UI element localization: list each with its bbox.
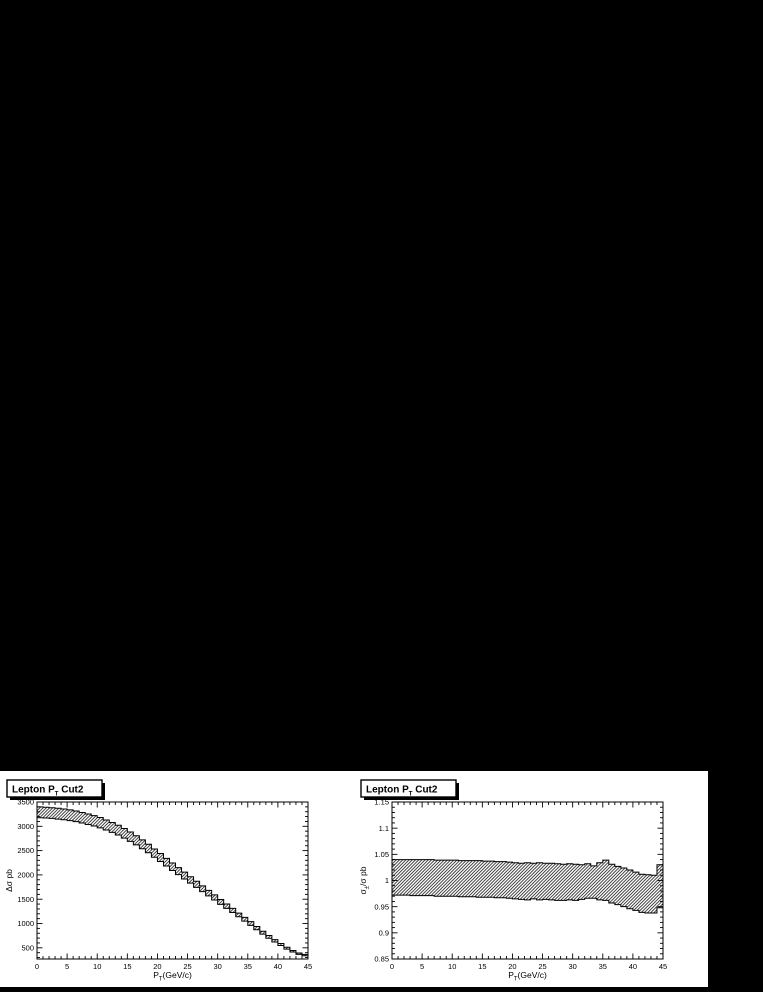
y-axis-title: Δσ pb — [4, 869, 14, 892]
y-tick-label: 0.95 — [374, 902, 389, 911]
y-tick-label: 1.05 — [374, 850, 389, 859]
y-tick-label: 2000 — [17, 871, 34, 880]
y-tick-label: 1500 — [17, 895, 34, 904]
chart-svg: 0510152025303540455001000150020002500300… — [0, 771, 354, 987]
x-tick-label: 30 — [213, 962, 221, 971]
x-axis-title: PT(GeV/c) — [153, 970, 192, 983]
y-tick-label: 0.85 — [374, 955, 389, 964]
y-tick-label: 1000 — [17, 919, 34, 928]
x-tick-label: 40 — [629, 962, 637, 971]
pad-sigma-ratio-vs-pt: 0510152025303540450.850.90.9511.051.11.1… — [354, 771, 708, 987]
x-tick-label: 45 — [304, 962, 312, 971]
x-tick-label: 30 — [568, 962, 576, 971]
y-tick-label: 500 — [21, 943, 34, 952]
x-tick-label: 10 — [448, 962, 456, 971]
y-tick-label: 1 — [385, 876, 389, 885]
y-axis-title: σ±/σ pb — [358, 866, 371, 894]
x-tick-label: 10 — [93, 962, 101, 971]
x-tick-label: 45 — [659, 962, 667, 971]
y-tick-label: 1.1 — [379, 824, 389, 833]
pad-delta-sigma-vs-pt: 0510152025303540455001000150020002500300… — [0, 771, 354, 987]
y-tick-label: 3000 — [17, 822, 34, 831]
page-background: { "page": { "background_color": "#000000… — [0, 0, 763, 987]
x-tick-label: 35 — [599, 962, 607, 971]
root-canvas: 0510152025303540455001000150020002500300… — [0, 771, 708, 987]
uncertainty-band — [37, 807, 308, 956]
x-axis-title: PT(GeV/c) — [508, 970, 547, 983]
x-tick-label: 5 — [420, 962, 424, 971]
x-tick-label: 0 — [35, 962, 39, 971]
x-tick-label: 15 — [478, 962, 486, 971]
x-tick-label: 15 — [123, 962, 131, 971]
y-tick-label: 0.9 — [379, 928, 389, 937]
x-tick-label: 35 — [244, 962, 252, 971]
uncertainty-band — [392, 860, 663, 913]
chart-svg: 0510152025303540450.850.90.9511.051.11.1… — [354, 771, 708, 987]
y-tick-label: 2500 — [17, 846, 34, 855]
x-tick-label: 5 — [65, 962, 69, 971]
x-tick-label: 40 — [274, 962, 282, 971]
x-tick-label: 0 — [390, 962, 394, 971]
